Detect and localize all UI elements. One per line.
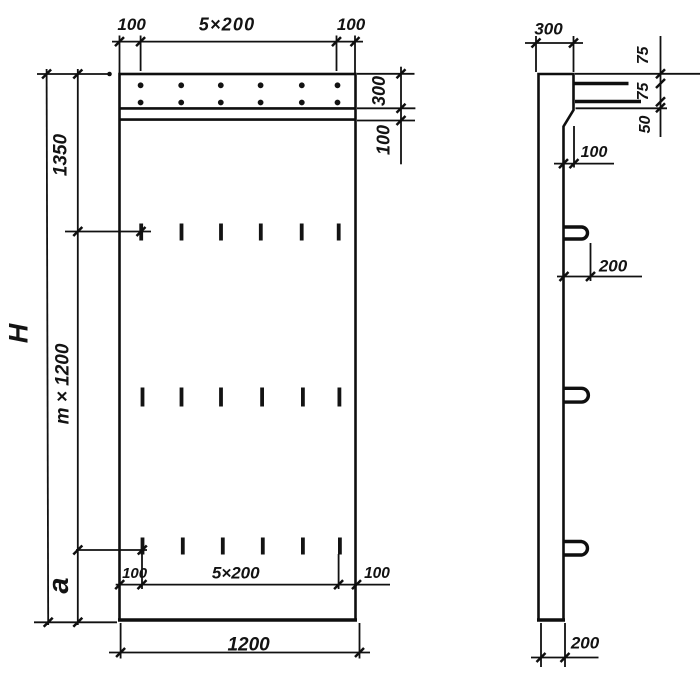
svg-text:300: 300: [369, 76, 389, 106]
svg-text:100: 100: [117, 15, 146, 34]
svg-text:300: 300: [534, 20, 563, 39]
svg-text:100: 100: [581, 144, 608, 161]
svg-text:1200: 1200: [227, 635, 270, 656]
svg-text:200: 200: [598, 257, 628, 276]
svg-text:H: H: [4, 323, 34, 343]
svg-text:m × 1200: m × 1200: [53, 343, 74, 424]
svg-text:100: 100: [337, 15, 366, 34]
svg-text:50: 50: [637, 116, 654, 134]
svg-text:100: 100: [122, 565, 148, 582]
svg-text:200: 200: [570, 634, 600, 653]
svg-text:75: 75: [635, 82, 652, 101]
svg-text:100: 100: [364, 565, 390, 582]
svg-text:100: 100: [374, 125, 394, 155]
svg-text:75: 75: [635, 45, 652, 64]
svg-text:1350: 1350: [51, 133, 72, 176]
svg-text:5×200: 5×200: [199, 15, 256, 35]
svg-text:5×200: 5×200: [212, 564, 260, 583]
svg-text:a: a: [43, 577, 75, 593]
